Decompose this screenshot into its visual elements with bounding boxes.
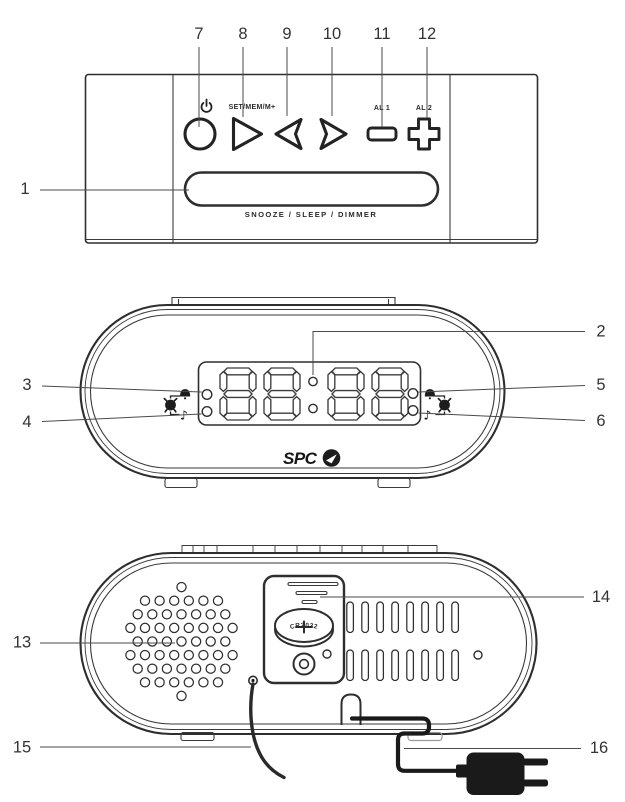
callout-1: 1 [20, 180, 29, 198]
spc-logo: SPC [283, 449, 340, 468]
callout-3: 3 [22, 376, 31, 394]
callout-5: 5 [596, 376, 605, 394]
vent-slots [347, 602, 459, 681]
alarm2-indicator-icons: ♪ [424, 389, 451, 422]
alarm2-buzzer-led [408, 389, 418, 399]
music-note-icon: ♪ [424, 408, 432, 423]
alarm2-button: AL 2 [409, 105, 439, 149]
callout-16: 16 [590, 739, 608, 757]
diagram-artwork: SET/MEM/M+ AL 1 AL 2 SNOOZE / SLEEP / DI… [0, 0, 625, 802]
screw-hole-right [474, 651, 482, 659]
antenna [249, 676, 284, 777]
power-icon [202, 100, 212, 112]
alarm1-indicator-icons: ♪ [164, 389, 190, 422]
antenna-wire [251, 684, 284, 778]
plus-icon [409, 119, 439, 149]
alarm1-radio-led [202, 407, 212, 417]
callout-13: 13 [13, 634, 31, 652]
digit-3 [328, 368, 364, 420]
set-mem-label: SET/MEM/M+ [229, 104, 276, 111]
callout-9: 9 [282, 25, 291, 43]
colon-dot-top [309, 377, 317, 385]
callout-10: 10 [323, 25, 341, 43]
next-button [321, 120, 346, 149]
top-view: SET/MEM/M+ AL 1 AL 2 SNOOZE / SLEEP / DI… [20, 25, 537, 243]
adapter-prong-bottom [523, 780, 548, 787]
set-mem-button: SET/MEM/M+ [229, 104, 276, 150]
callout-4: 4 [22, 413, 31, 431]
brand-text: SPC [283, 449, 318, 468]
bell-icon [180, 389, 190, 396]
callout-2: 2 [596, 323, 605, 341]
power-button-shape [185, 119, 215, 149]
coin-cell-battery: CR2032 [275, 609, 333, 647]
speaker-grille [126, 583, 237, 701]
previous-button [276, 120, 301, 149]
play-triangle-icon [234, 119, 262, 150]
snooze-bar-shape [185, 173, 438, 206]
digit-1 [220, 368, 256, 420]
front-foot-right [378, 479, 410, 488]
battery-door-screw [294, 654, 315, 675]
power-button [185, 100, 215, 150]
door-grip-line-1 [288, 583, 338, 586]
alarm1-buzzer-led [202, 390, 212, 400]
screw-hole-left [323, 650, 331, 658]
callout-15: 15 [13, 739, 31, 757]
callout-14: 14 [592, 588, 610, 606]
battery-door-screw-center [300, 660, 309, 669]
digit-2 [264, 368, 300, 420]
alarm2-label: AL 2 [416, 105, 432, 112]
adapter-body [467, 753, 525, 796]
alarm2-radio-led [408, 406, 418, 416]
callout-8: 8 [238, 25, 247, 43]
callout-12: 12 [418, 25, 436, 43]
snooze-bar-label: SNOOZE / SLEEP / DIMMER [245, 210, 377, 219]
door-grip-line-2 [296, 592, 327, 595]
callout-7: 7 [194, 25, 203, 43]
door-grip-line-3 [302, 601, 317, 604]
digit-4 [372, 368, 408, 420]
back-view: CR2032 13 [13, 546, 610, 796]
power-cord [352, 719, 458, 771]
front-top-tab [172, 298, 395, 305]
snooze-bar: SNOOZE / SLEEP / DIMMER [185, 173, 438, 220]
callout-11: 11 [373, 25, 390, 43]
clock-display [199, 362, 421, 425]
back-top-strip [182, 546, 437, 554]
front-foot-left [165, 479, 197, 488]
callout-6: 6 [596, 412, 605, 430]
bell-icon [425, 389, 435, 396]
colon-dot-bottom [309, 404, 317, 412]
battery-compartment: CR2032 [264, 576, 344, 683]
minus-icon [368, 128, 396, 140]
manual-diagram-page: SET/MEM/M+ AL 1 AL 2 SNOOZE / SLEEP / DI… [0, 0, 625, 802]
front-view: ♪ ♪ SPC 2 3 [22, 298, 605, 488]
adapter-prong-top [523, 759, 548, 766]
power-adapter [456, 753, 548, 796]
